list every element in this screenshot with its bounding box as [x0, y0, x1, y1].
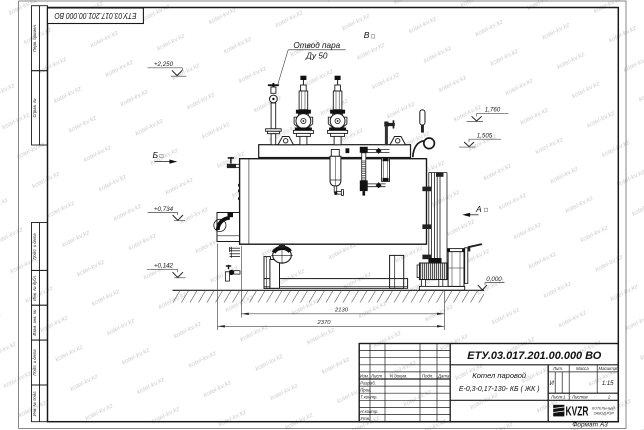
svg-text:Ду 50: Ду 50 [305, 52, 328, 61]
svg-text:Дата: Дата [437, 373, 450, 378]
svg-text:Н.контр.: Н.контр. [360, 409, 378, 414]
svg-text:ЕТУ.03.017.201.00.000 ВО: ЕТУ.03.017.201.00.000 ВО [467, 350, 601, 362]
svg-text:Взам. инв. №: Взам. инв. № [32, 309, 37, 335]
svg-text:Лит.: Лит. [552, 366, 563, 371]
svg-text:Справ. №: Справ. № [32, 98, 37, 117]
svg-text:+2,250: +2,250 [154, 61, 174, 68]
svg-text:Утв.: Утв. [360, 416, 370, 421]
svg-text:Подп. и дата: Подп. и дата [32, 349, 37, 376]
svg-text:1,505: 1,505 [477, 133, 493, 140]
svg-text:+0,142: +0,142 [154, 262, 174, 269]
svg-text:Перв. примен.: Перв. примен. [32, 24, 37, 52]
svg-text:Лист 1: Лист 1 [550, 395, 566, 400]
svg-text:KVZR: KVZR [566, 405, 589, 419]
svg-text:В: В [364, 30, 370, 40]
svg-text:1,760: 1,760 [485, 107, 501, 114]
svg-text:Пров.: Пров. [360, 388, 371, 393]
svg-text:Подп.: Подп. [422, 373, 433, 378]
svg-text:Масштаб: Масштаб [599, 366, 620, 371]
svg-text:1:15: 1:15 [602, 381, 614, 387]
svg-text:Котел паровой: Котел паровой [472, 371, 527, 380]
svg-text:0,000: 0,000 [486, 276, 502, 283]
svg-text:Инв. № дубл.: Инв. № дубл. [32, 275, 37, 301]
svg-text:Инв. № подл.: Инв. № подл. [32, 390, 37, 416]
svg-text:Формат А3: Формат А3 [572, 422, 608, 429]
svg-text:Изм.: Изм. [360, 373, 369, 378]
svg-text:2130: 2130 [334, 308, 349, 314]
svg-text:И: И [549, 381, 554, 387]
svg-text:N докум.: N докум. [390, 373, 407, 378]
svg-text:Б: Б [153, 150, 159, 160]
svg-text:ЗАВОД РЭР: ЗАВОД РЭР [594, 412, 615, 416]
svg-text:2370: 2370 [317, 320, 332, 326]
svg-text:Т.контр.: Т.контр. [360, 395, 377, 400]
svg-text:Разраб.: Разраб. [360, 380, 376, 385]
svg-text:ЕТУ.03.017.201.00.000 ВО: ЕТУ.03.017.201.00.000 ВО [55, 11, 137, 20]
svg-text:Е-0,3-0,17-130- КБ ( ЖК ): Е-0,3-0,17-130- КБ ( ЖК ) [459, 386, 540, 393]
svg-text:Лист: Лист [370, 373, 382, 378]
svg-text:Отвод пара: Отвод пара [293, 41, 340, 50]
svg-text:+0,734: +0,734 [154, 206, 174, 213]
svg-text:Листов: Листов [571, 395, 588, 400]
svg-text:Подп. и дата: Подп. и дата [32, 233, 37, 260]
svg-text:КОТЕЛЬНЫЙ: КОТЕЛЬНЫЙ [592, 407, 615, 411]
svg-text:А: А [475, 204, 482, 214]
svg-text:Масса: Масса [576, 366, 589, 371]
